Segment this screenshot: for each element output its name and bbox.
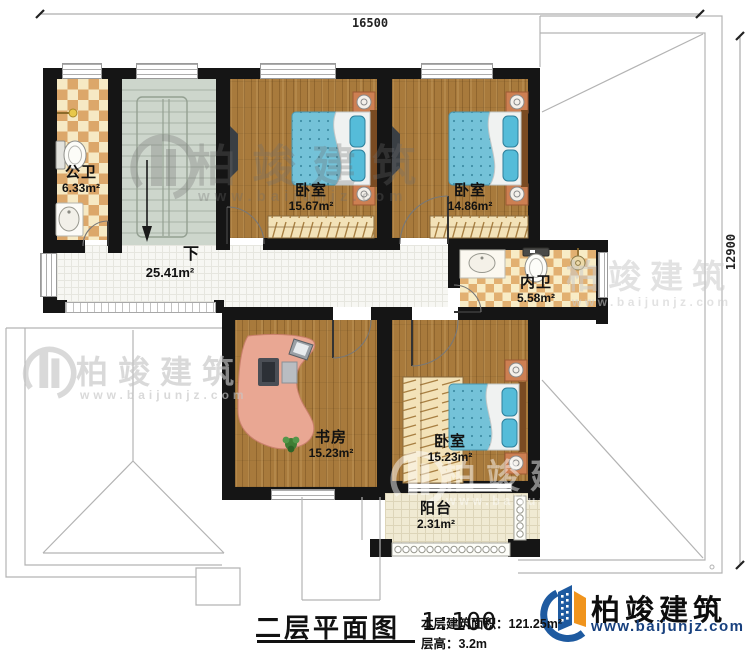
sink-icon <box>56 203 83 236</box>
room-label-hallway: 25.41m² <box>130 265 210 280</box>
door-bedroom-top-left <box>227 207 264 244</box>
room-label-inner-bath: 内卫 5.58m² <box>501 275 571 305</box>
room-name: 书房 <box>296 430 366 447</box>
room-label-study: 书房 15.23m² <box>296 430 366 460</box>
floor-area-info: 本层建筑面积：121.25m² <box>421 613 562 632</box>
watermark: 柏竣建筑 www.baijunjz.com <box>26 349 248 402</box>
dimension-width-label: 16500 <box>352 16 388 30</box>
room-label-public-bath: 公卫 6.33m² <box>46 165 116 195</box>
dimension-width: 16500 <box>36 10 704 30</box>
door-study <box>333 320 371 358</box>
room-area: 15.23m² <box>415 451 485 464</box>
room-name: 卧室 <box>435 183 505 200</box>
wardrobe-icon <box>430 216 528 238</box>
room-label-balcony: 阳台 2.31m² <box>401 501 471 531</box>
door-bedroom-bottom <box>412 320 458 366</box>
floor-height-value: 3.2m <box>459 637 488 651</box>
towel-ring-icon <box>57 109 77 117</box>
floor-height-label: 层高： <box>421 637 459 651</box>
room-label-bedroom-top-left: 卧室 15.67m² <box>276 183 346 213</box>
room-name: 卧室 <box>415 434 485 451</box>
room-name: 阳台 <box>401 501 471 518</box>
stairs-down-arrow-icon <box>142 226 152 242</box>
plan-artwork: 16500 12900 <box>0 0 750 651</box>
watermark-url: www.baijunjz.com <box>571 295 732 309</box>
room-name: 卧室 <box>276 183 346 200</box>
brand-website: www.baijunjz.com <box>591 618 744 635</box>
room-name: 公卫 <box>46 165 116 182</box>
floor-area-label: 本层建筑面积： <box>421 617 509 631</box>
room-area: 15.23m² <box>296 447 366 460</box>
title-underline <box>257 640 415 643</box>
floor-height-info: 层高：3.2m <box>421 633 487 651</box>
watermark-url: www.baijunjz.com <box>79 388 248 402</box>
room-label-bedroom-bottom: 卧室 15.23m² <box>415 434 485 464</box>
room-area: 15.67m² <box>276 200 346 213</box>
room-area: 5.58m² <box>501 292 571 305</box>
floor-plan-canvas: 16500 12900 <box>0 0 750 651</box>
door-public-bath <box>83 221 108 246</box>
watermark: 柏竣建筑 www.baijunjz.com <box>566 258 734 309</box>
lower-floor-outline <box>196 497 380 605</box>
room-name: 内卫 <box>501 275 571 292</box>
door-inner-bath <box>454 285 481 312</box>
floor-area-value: 121.25m² <box>509 617 563 631</box>
room-area: 6.33m² <box>46 182 116 195</box>
wardrobe-icon <box>268 216 374 238</box>
vanity-sink-icon <box>460 250 505 278</box>
watermark-name: 柏竣建筑 <box>566 258 734 295</box>
stairs-down-label: 下 <box>183 240 199 264</box>
room-label-bedroom-top-right: 卧室 14.86m² <box>435 183 505 213</box>
watermark-name: 柏竣建筑 <box>76 354 244 390</box>
room-area: 2.31m² <box>401 518 471 531</box>
room-area: 14.86m² <box>435 200 505 213</box>
